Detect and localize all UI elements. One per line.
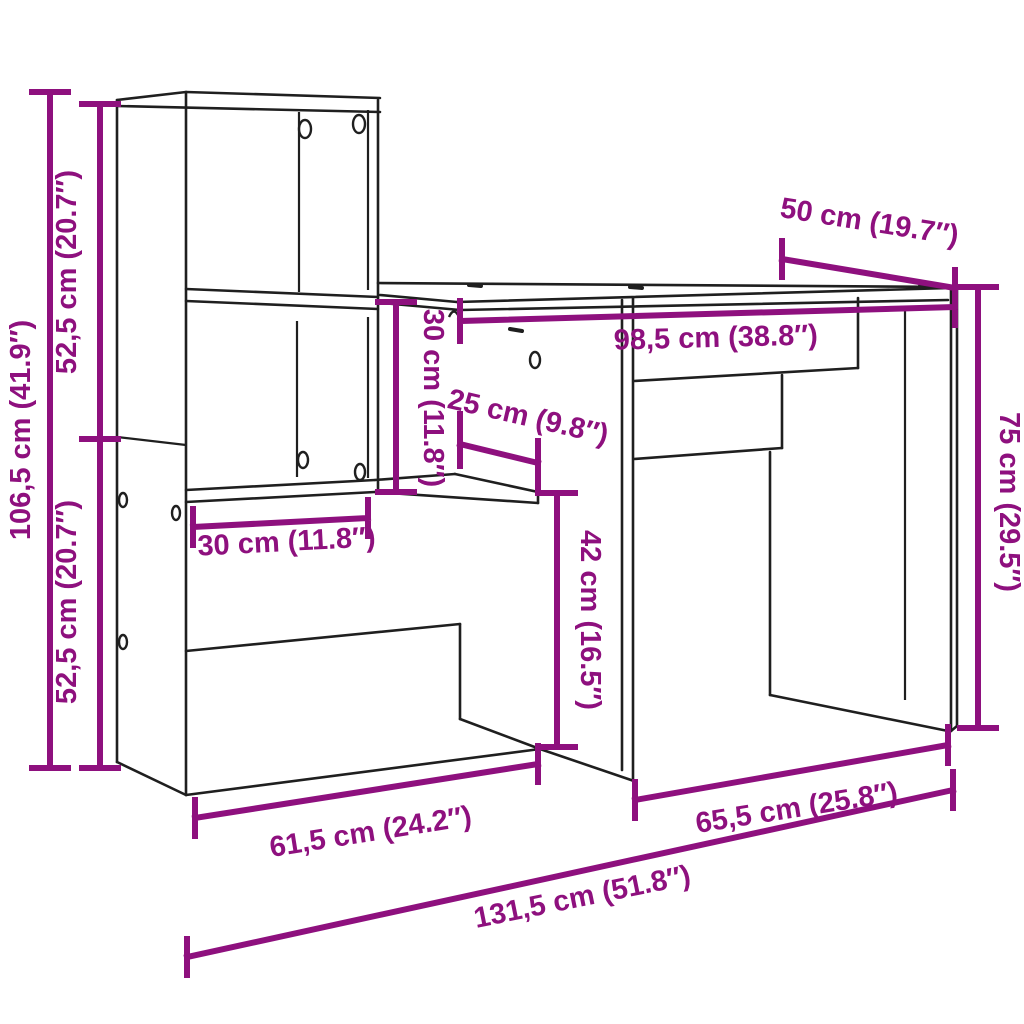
- dimension-label-shelf-unit-width: 61,5 cm (24.2″): [267, 800, 474, 864]
- dimension-label-desktop-width: 98,5 cm (38.8″): [613, 319, 818, 356]
- dimension-shelf-unit-width: 61,5 cm (24.2″): [195, 746, 538, 864]
- dimension-label-upper-section-height: 52,5 cm (20.7″): [51, 170, 83, 374]
- right-panel: [905, 287, 957, 731]
- dimension-upper-section-height: 52,5 cm (20.7″): [51, 104, 118, 439]
- dimension-desk-height: 75 cm (29.5″): [960, 287, 1024, 728]
- screw-hole: [119, 635, 127, 649]
- middle-panel: [622, 298, 633, 781]
- dowel-mark: [630, 287, 642, 288]
- lower-cabinet-panel: [186, 624, 634, 795]
- dowel-mark: [469, 285, 481, 286]
- dimension-label-desk-depth: 50 cm (19.7″): [778, 192, 961, 252]
- dimension-shelf-opening-height: 30 cm (11.8″): [378, 302, 449, 492]
- drawer: [634, 298, 948, 731]
- dimension-label-shelf-opening-height: 30 cm (11.8″): [417, 309, 449, 487]
- dimension-label-shelf-depth: 25 cm (9.8″): [445, 383, 612, 451]
- dimension-label-under-shelf-clearance: 42 cm (16.5″): [574, 530, 606, 710]
- screw-hole: [298, 452, 308, 468]
- shelf-tower: [117, 92, 380, 795]
- dimension-label-total-height: 106,5 cm (41.9″): [5, 320, 37, 540]
- dowel-mark: [510, 329, 522, 331]
- dimension-label-lower-section-height: 52,5 cm (20.7″): [51, 500, 83, 704]
- furniture-dimension-diagram: 106,5 cm (41.9″) 52,5 cm (20.7″) 52,5 cm…: [0, 0, 1024, 1024]
- dimension-lower-section-height: 52,5 cm (20.7″): [51, 439, 118, 768]
- screw-hole: [299, 120, 311, 138]
- screw-hole: [172, 506, 180, 520]
- screw-hole: [355, 464, 365, 480]
- dimension-label-desk-height: 75 cm (29.5″): [993, 412, 1024, 592]
- diagram-canvas: 106,5 cm (41.9″) 52,5 cm (20.7″) 52,5 cm…: [0, 0, 1024, 1024]
- dimension-shelf-width: 30 cm (11.8″): [193, 500, 376, 563]
- screw-hole: [119, 493, 127, 507]
- dimension-under-shelf-clearance: 42 cm (16.5″): [539, 493, 606, 747]
- screw-hole: [353, 115, 365, 133]
- screw-hole: [530, 352, 540, 368]
